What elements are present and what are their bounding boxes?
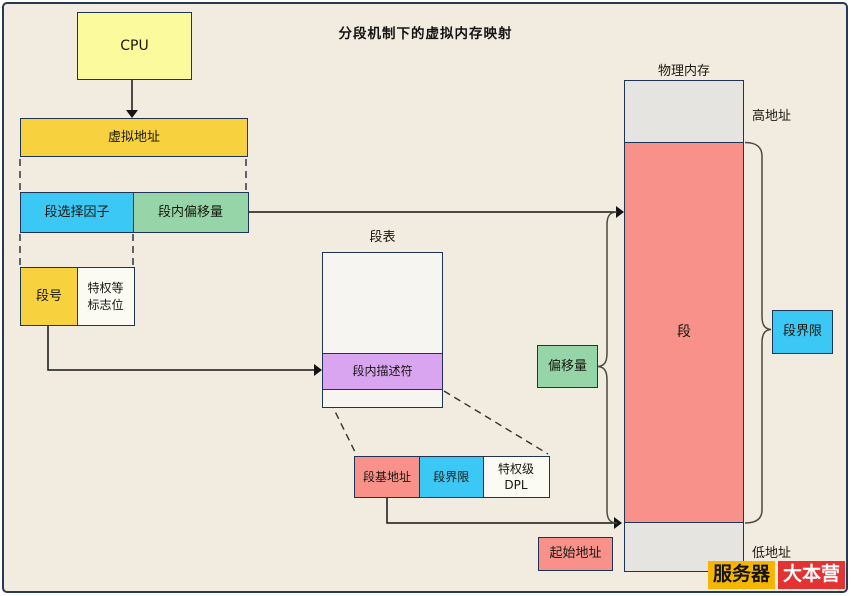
physical-memory-label: 物理内存	[624, 60, 744, 79]
segment-descriptor-band: 段内描述符	[322, 353, 443, 390]
memory-segment-region: 段	[624, 142, 744, 524]
memory-top-region	[624, 80, 744, 143]
cpu-label: CPU	[120, 37, 148, 56]
privilege-flags-line2: 标志位	[87, 297, 123, 313]
high-address-label: 高地址	[752, 105, 791, 124]
watermark-part1: 服务器	[708, 561, 775, 589]
privilege-flags-box: 特权等 标志位	[77, 267, 135, 326]
dpl-box: 特权级 DPL	[483, 456, 550, 498]
cpu-box: CPU	[77, 12, 192, 80]
segment-limit-box: 段界限	[772, 310, 833, 354]
inner-offset-box: 段内偏移量	[133, 192, 249, 233]
base-address-box: 段基地址	[354, 456, 420, 498]
segment-number-box: 段号	[20, 267, 78, 326]
watermark-logo: 服务器 大本营	[708, 561, 845, 589]
segment-table-label: 段表	[322, 226, 443, 245]
start-address-box: 起始地址	[538, 537, 613, 571]
dpl-line2: DPL	[504, 477, 527, 493]
segment-selector-box: 段选择因子	[20, 192, 134, 233]
diagram-canvas: 分段机制下的虚拟内存映射 CPU 虚拟地址 段选择因子 段内偏移量 段号 特权等…	[0, 0, 851, 596]
offset-brace-label-box: 偏移量	[537, 345, 598, 388]
virtual-address-label: 虚拟地址	[108, 129, 160, 147]
virtual-address-box: 虚拟地址	[20, 118, 248, 157]
start-address-label: 起始地址	[549, 545, 601, 563]
descriptor-limit-box: 段界限	[419, 456, 485, 498]
segment-number-label: 段号	[36, 288, 62, 306]
dpl-line1: 特权级	[498, 461, 534, 477]
segment-descriptor-label: 段内描述符	[352, 363, 412, 379]
descriptor-limit-label: 段界限	[433, 469, 469, 485]
offset-brace-label: 偏移量	[548, 358, 587, 376]
low-address-label: 低地址	[752, 542, 791, 561]
inner-offset-label: 段内偏移量	[158, 204, 223, 222]
segment-limit-label: 段界限	[783, 323, 822, 341]
memory-segment-label: 段	[677, 323, 691, 342]
privilege-flags-line1: 特权等	[87, 280, 123, 296]
watermark-part2: 大本营	[778, 561, 845, 589]
base-address-label: 段基地址	[363, 469, 411, 485]
segment-selector-label: 段选择因子	[44, 204, 109, 222]
